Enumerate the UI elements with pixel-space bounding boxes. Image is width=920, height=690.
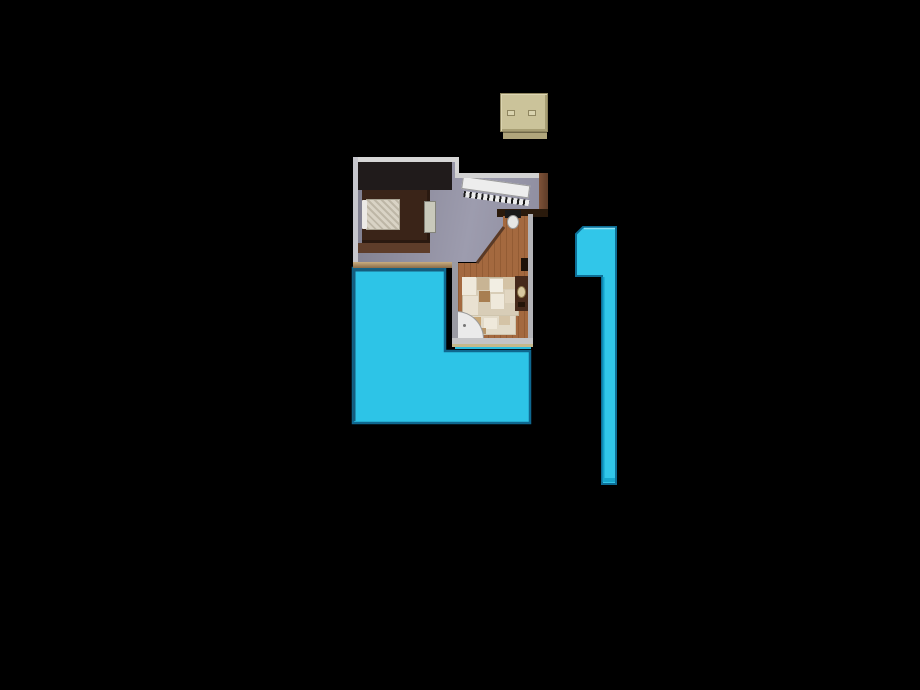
bathroom-left-wall (452, 262, 458, 346)
storage-box-handle (507, 110, 515, 116)
storage-box-handle (528, 110, 536, 116)
vanity-sink (517, 286, 526, 298)
vanity-item (518, 302, 525, 307)
top-wall-left (353, 157, 459, 162)
tile-patch (462, 277, 476, 295)
tile-patch (477, 278, 489, 290)
bathroom-bottom-trim (452, 344, 533, 347)
bedroom-bottom-wall (353, 262, 455, 268)
bed-quilt (366, 199, 400, 230)
left-wall (353, 157, 358, 267)
render-viewport (0, 0, 920, 690)
bedroom-dark-corner (358, 162, 452, 190)
tile-patch (491, 294, 504, 309)
bed-pillow (362, 200, 367, 229)
storage-box-base (503, 132, 547, 139)
hallway-item (521, 258, 528, 271)
toilet-bowl (507, 215, 519, 229)
shower-drain (463, 324, 466, 327)
tile-patch (490, 279, 503, 292)
tile-patch (479, 291, 490, 302)
bed-frame-band (356, 243, 430, 253)
dresser (424, 201, 436, 233)
top-wall-right (455, 173, 543, 178)
bathroom-right-wall (528, 214, 533, 346)
tile-patch (499, 316, 510, 325)
